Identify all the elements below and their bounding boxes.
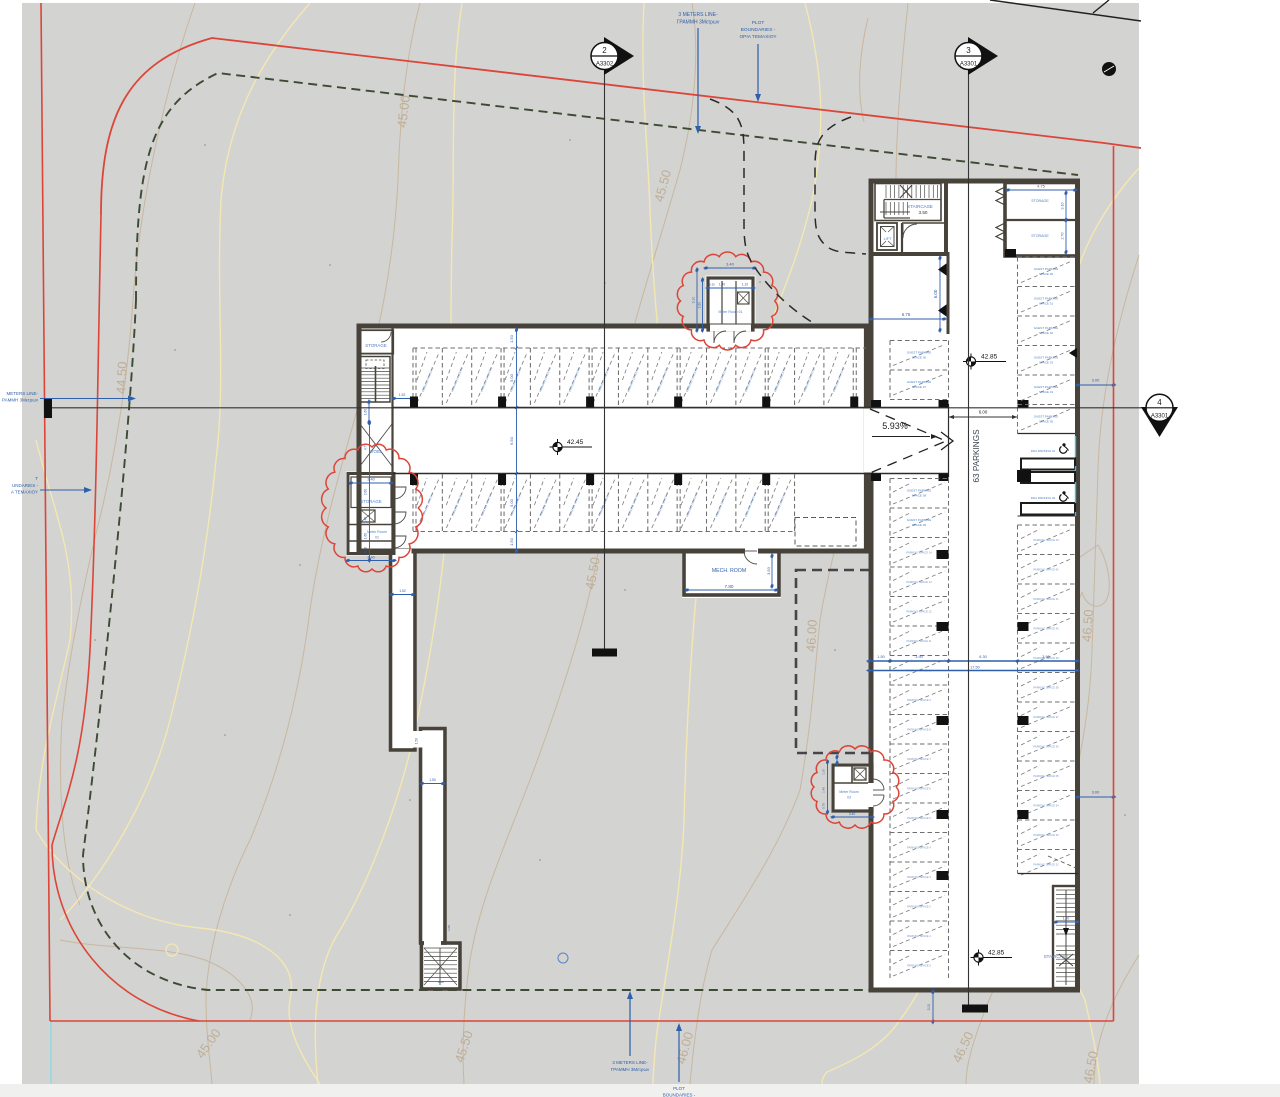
svg-text:STAIRCASE: STAIRCASE [907,204,933,209]
svg-text:SPACE 30: SPACE 30 [1039,272,1053,276]
svg-text:PARKING SPACE 41: PARKING SPACE 41 [1033,597,1059,601]
svg-text:SPACE 33: SPACE 33 [1039,361,1053,365]
svg-text:17.50: 17.50 [970,666,980,670]
svg-text:42.85: 42.85 [988,950,1005,957]
svg-text:GUEST PARKING: GUEST PARKING [1034,297,1059,301]
svg-text:GUEST PARKING: GUEST PARKING [1034,415,1059,419]
svg-text:2.70: 2.70 [1061,233,1065,240]
svg-text:4: 4 [1157,398,1162,407]
svg-text:42.85: 42.85 [981,354,998,361]
svg-text:PARKING SPACE 5: PARKING SPACE 5 [907,816,931,820]
svg-text:A3302: A3302 [596,62,614,68]
svg-text:GUEST PARKING: GUEST PARKING [907,518,932,522]
svg-text:1.40: 1.40 [364,517,368,523]
svg-text:ΡΑΜΜΗ 3Μετρων: ΡΑΜΜΗ 3Μετρων [2,398,39,403]
svg-text:SPACE 31: SPACE 31 [1039,302,1053,306]
svg-text:5.00: 5.00 [509,373,514,382]
svg-text:PARKING SPACE 40: PARKING SPACE 40 [1033,627,1059,631]
svg-text:PARKING SPACE 6: PARKING SPACE 6 [907,787,931,791]
svg-text:BOUNDARIES -: BOUNDARIES - [663,1093,696,1097]
svg-text:PARKING SPACE 11: PARKING SPACE 11 [906,639,932,643]
svg-text:METERS LINE-: METERS LINE- [6,391,38,396]
svg-text:5.93%: 5.93% [882,421,908,431]
svg-text:1.50: 1.50 [509,537,514,546]
svg-text:VOID: VOID [370,449,382,454]
svg-text:MECH. ROOM: MECH. ROOM [712,568,746,574]
svg-text:3.50: 3.50 [919,210,928,215]
svg-text:PARKING SPACE 14: PARKING SPACE 14 [906,551,932,555]
svg-text:Meter Room 01: Meter Room 01 [718,310,742,314]
svg-text:1.52: 1.52 [399,589,406,593]
svg-text:2.60: 2.60 [438,980,444,984]
svg-text:A3301: A3301 [960,62,978,68]
svg-text:Meter Room: Meter Room [367,530,387,534]
svg-text:GUEST PARKING: GUEST PARKING [907,489,932,493]
svg-text:PARKING SPACE 7: PARKING SPACE 7 [907,757,931,761]
svg-text:1.40: 1.40 [719,283,725,287]
svg-text:44.50: 44.50 [113,361,130,394]
svg-text:PARKING SPACE 42: PARKING SPACE 42 [1033,568,1059,572]
svg-text:3.90: 3.90 [1042,655,1049,659]
svg-text:1.10: 1.10 [742,283,748,287]
svg-text:1.60: 1.60 [364,533,368,539]
svg-text:1.00: 1.00 [447,925,451,931]
svg-text:4.75: 4.75 [1037,184,1046,189]
svg-text:3 METERS LINE-: 3 METERS LINE- [612,1060,648,1065]
svg-text:GUEST PARKING: GUEST PARKING [1034,356,1059,360]
svg-text:1.50: 1.50 [877,655,884,659]
svg-text:6.30: 6.30 [979,655,986,659]
svg-text:1.60: 1.60 [364,409,368,415]
svg-text:2.60: 2.60 [698,302,702,309]
svg-text:46.50: 46.50 [1079,609,1096,643]
svg-text:UNDARIES -: UNDARIES - [12,483,39,488]
svg-text:SPACE 34: SPACE 34 [1039,390,1053,394]
svg-text:6.00: 6.00 [933,289,938,298]
svg-text:2.60: 2.60 [364,489,368,495]
svg-text:3 METERS LINE-: 3 METERS LINE- [678,12,718,18]
svg-text:PARKING SPACE 4: PARKING SPACE 4 [907,846,931,850]
svg-text:LIFT: LIFT [884,237,892,241]
svg-text:3.40: 3.40 [849,812,856,816]
svg-text:SPACE 35: SPACE 35 [1039,420,1053,424]
svg-text:42.45: 42.45 [567,439,584,446]
svg-text:1.50: 1.50 [415,738,419,744]
svg-text:5.00: 5.00 [509,498,514,507]
svg-text:GUEST PARKING: GUEST PARKING [1034,267,1059,271]
svg-text:02: 02 [375,536,379,540]
svg-text:3.50: 3.50 [766,566,771,575]
svg-text:3.00: 3.00 [927,1004,931,1011]
svg-text:SPACE 39: SPACE 39 [912,523,926,527]
svg-text:A3301: A3301 [1151,413,1169,419]
svg-text:Meter Room: Meter Room [839,790,858,794]
svg-text:PARKING SPACE 33: PARKING SPACE 33 [1033,833,1059,837]
svg-text:7.80: 7.80 [725,584,734,589]
svg-text:PARKING SPACE 34: PARKING SPACE 34 [1033,804,1059,808]
svg-text:STORAGE: STORAGE [1031,234,1049,238]
svg-text:SPACE 37: SPACE 37 [912,385,926,389]
svg-text:3.90: 3.90 [915,655,922,659]
svg-text:3.00: 3.00 [1092,790,1101,795]
svg-text:0.70: 0.70 [822,803,826,809]
svg-text:63 PARKINGS: 63 PARKINGS [972,429,981,483]
svg-text:DDA PARKING 01: DDA PARKING 01 [1031,449,1056,453]
svg-text:ΓΡΑΜΜΗ 3Μετρων: ΓΡΑΜΜΗ 3Μετρων [611,1067,650,1072]
svg-text:PARKING SPACE 12: PARKING SPACE 12 [906,610,932,614]
svg-text:1.52: 1.52 [399,393,406,397]
svg-text:1.10: 1.10 [822,769,826,775]
svg-text:GUEST PARKING: GUEST PARKING [1034,326,1059,330]
svg-text:ΓΡΑΜΜΗ 3Μετρων: ΓΡΑΜΜΗ 3Μετρων [677,20,720,26]
svg-text:PARKING SPACE 3: PARKING SPACE 3 [907,875,931,879]
svg-text:PARKING SPACE 32: PARKING SPACE 32 [1033,863,1059,867]
svg-text:3.40: 3.40 [367,478,374,482]
svg-text:STAIRCASE: STAIRCASE [1044,954,1069,959]
svg-text:3: 3 [966,46,971,55]
svg-text:STORAGE: STORAGE [365,343,386,348]
svg-text:ΟΡΙΑ ΤΕΜΑΧΙΟΥ: ΟΡΙΑ ΤΕΜΑΧΙΟΥ [739,34,777,40]
svg-text:STORAGE: STORAGE [1031,199,1049,203]
svg-text:3.10: 3.10 [692,297,696,304]
svg-text:PARKING SPACE 36: PARKING SPACE 36 [1033,745,1059,749]
svg-text:6.00: 6.00 [979,410,988,415]
svg-text:PARKING SPACE 9: PARKING SPACE 9 [907,698,931,702]
svg-text:PARKING SPACE 43: PARKING SPACE 43 [1033,538,1059,542]
svg-text:0.30: 0.30 [709,283,715,287]
svg-text:BOUNDARIES -: BOUNDARIES - [741,27,776,33]
svg-text:STORAGE: STORAGE [360,499,381,504]
svg-text:3.00: 3.00 [1092,378,1101,383]
svg-text:46.00: 46.00 [803,619,820,652]
svg-text:03: 03 [847,796,851,800]
svg-text:GUEST PARKING: GUEST PARKING [907,351,932,355]
svg-text:DDA PARKING 02: DDA PARKING 02 [1031,496,1056,500]
svg-text:PARKING SPACE 8: PARKING SPACE 8 [907,728,931,732]
svg-text:3.40: 3.40 [726,262,735,267]
svg-text:PLOT: PLOT [673,1086,685,1091]
svg-text:0.70: 0.70 [364,547,368,553]
svg-text:PARKING SPACE 37: PARKING SPACE 37 [1033,715,1059,719]
svg-text:SPACE 38: SPACE 38 [912,494,926,498]
svg-text:PARKING SPACE 1: PARKING SPACE 1 [907,934,931,938]
svg-text:1.50: 1.50 [509,334,514,343]
svg-text:PARKING SPACE 35: PARKING SPACE 35 [1033,774,1059,778]
svg-text:PLOT: PLOT [752,20,765,26]
svg-text:PARKING SPACE 13: PARKING SPACE 13 [906,580,932,584]
svg-text:SPACE 32: SPACE 32 [1039,331,1053,335]
svg-text:PARKING SPACE 0: PARKING SPACE 0 [907,964,931,968]
svg-text:T: T [35,476,38,481]
svg-text:2: 2 [602,46,607,55]
svg-text:PARKING SPACE 38: PARKING SPACE 38 [1033,686,1059,690]
svg-text:6.50: 6.50 [509,436,514,445]
svg-text:1.20: 1.20 [1063,917,1070,921]
svg-text:1.40: 1.40 [822,787,826,793]
svg-text:GUEST PARKING: GUEST PARKING [907,380,932,384]
svg-text:1.50: 1.50 [429,778,436,782]
svg-text:GUEST PARKING: GUEST PARKING [1034,385,1059,389]
svg-text:SPACE 36: SPACE 36 [912,356,926,360]
svg-text:6.75: 6.75 [902,312,911,317]
svg-text:PARKING SPACE 2: PARKING SPACE 2 [907,905,931,909]
svg-text:3.10: 3.10 [1061,203,1065,210]
svg-text:A ΤΕΜΑΧΙΟΥ: A ΤΕΜΑΧΙΟΥ [11,490,38,495]
